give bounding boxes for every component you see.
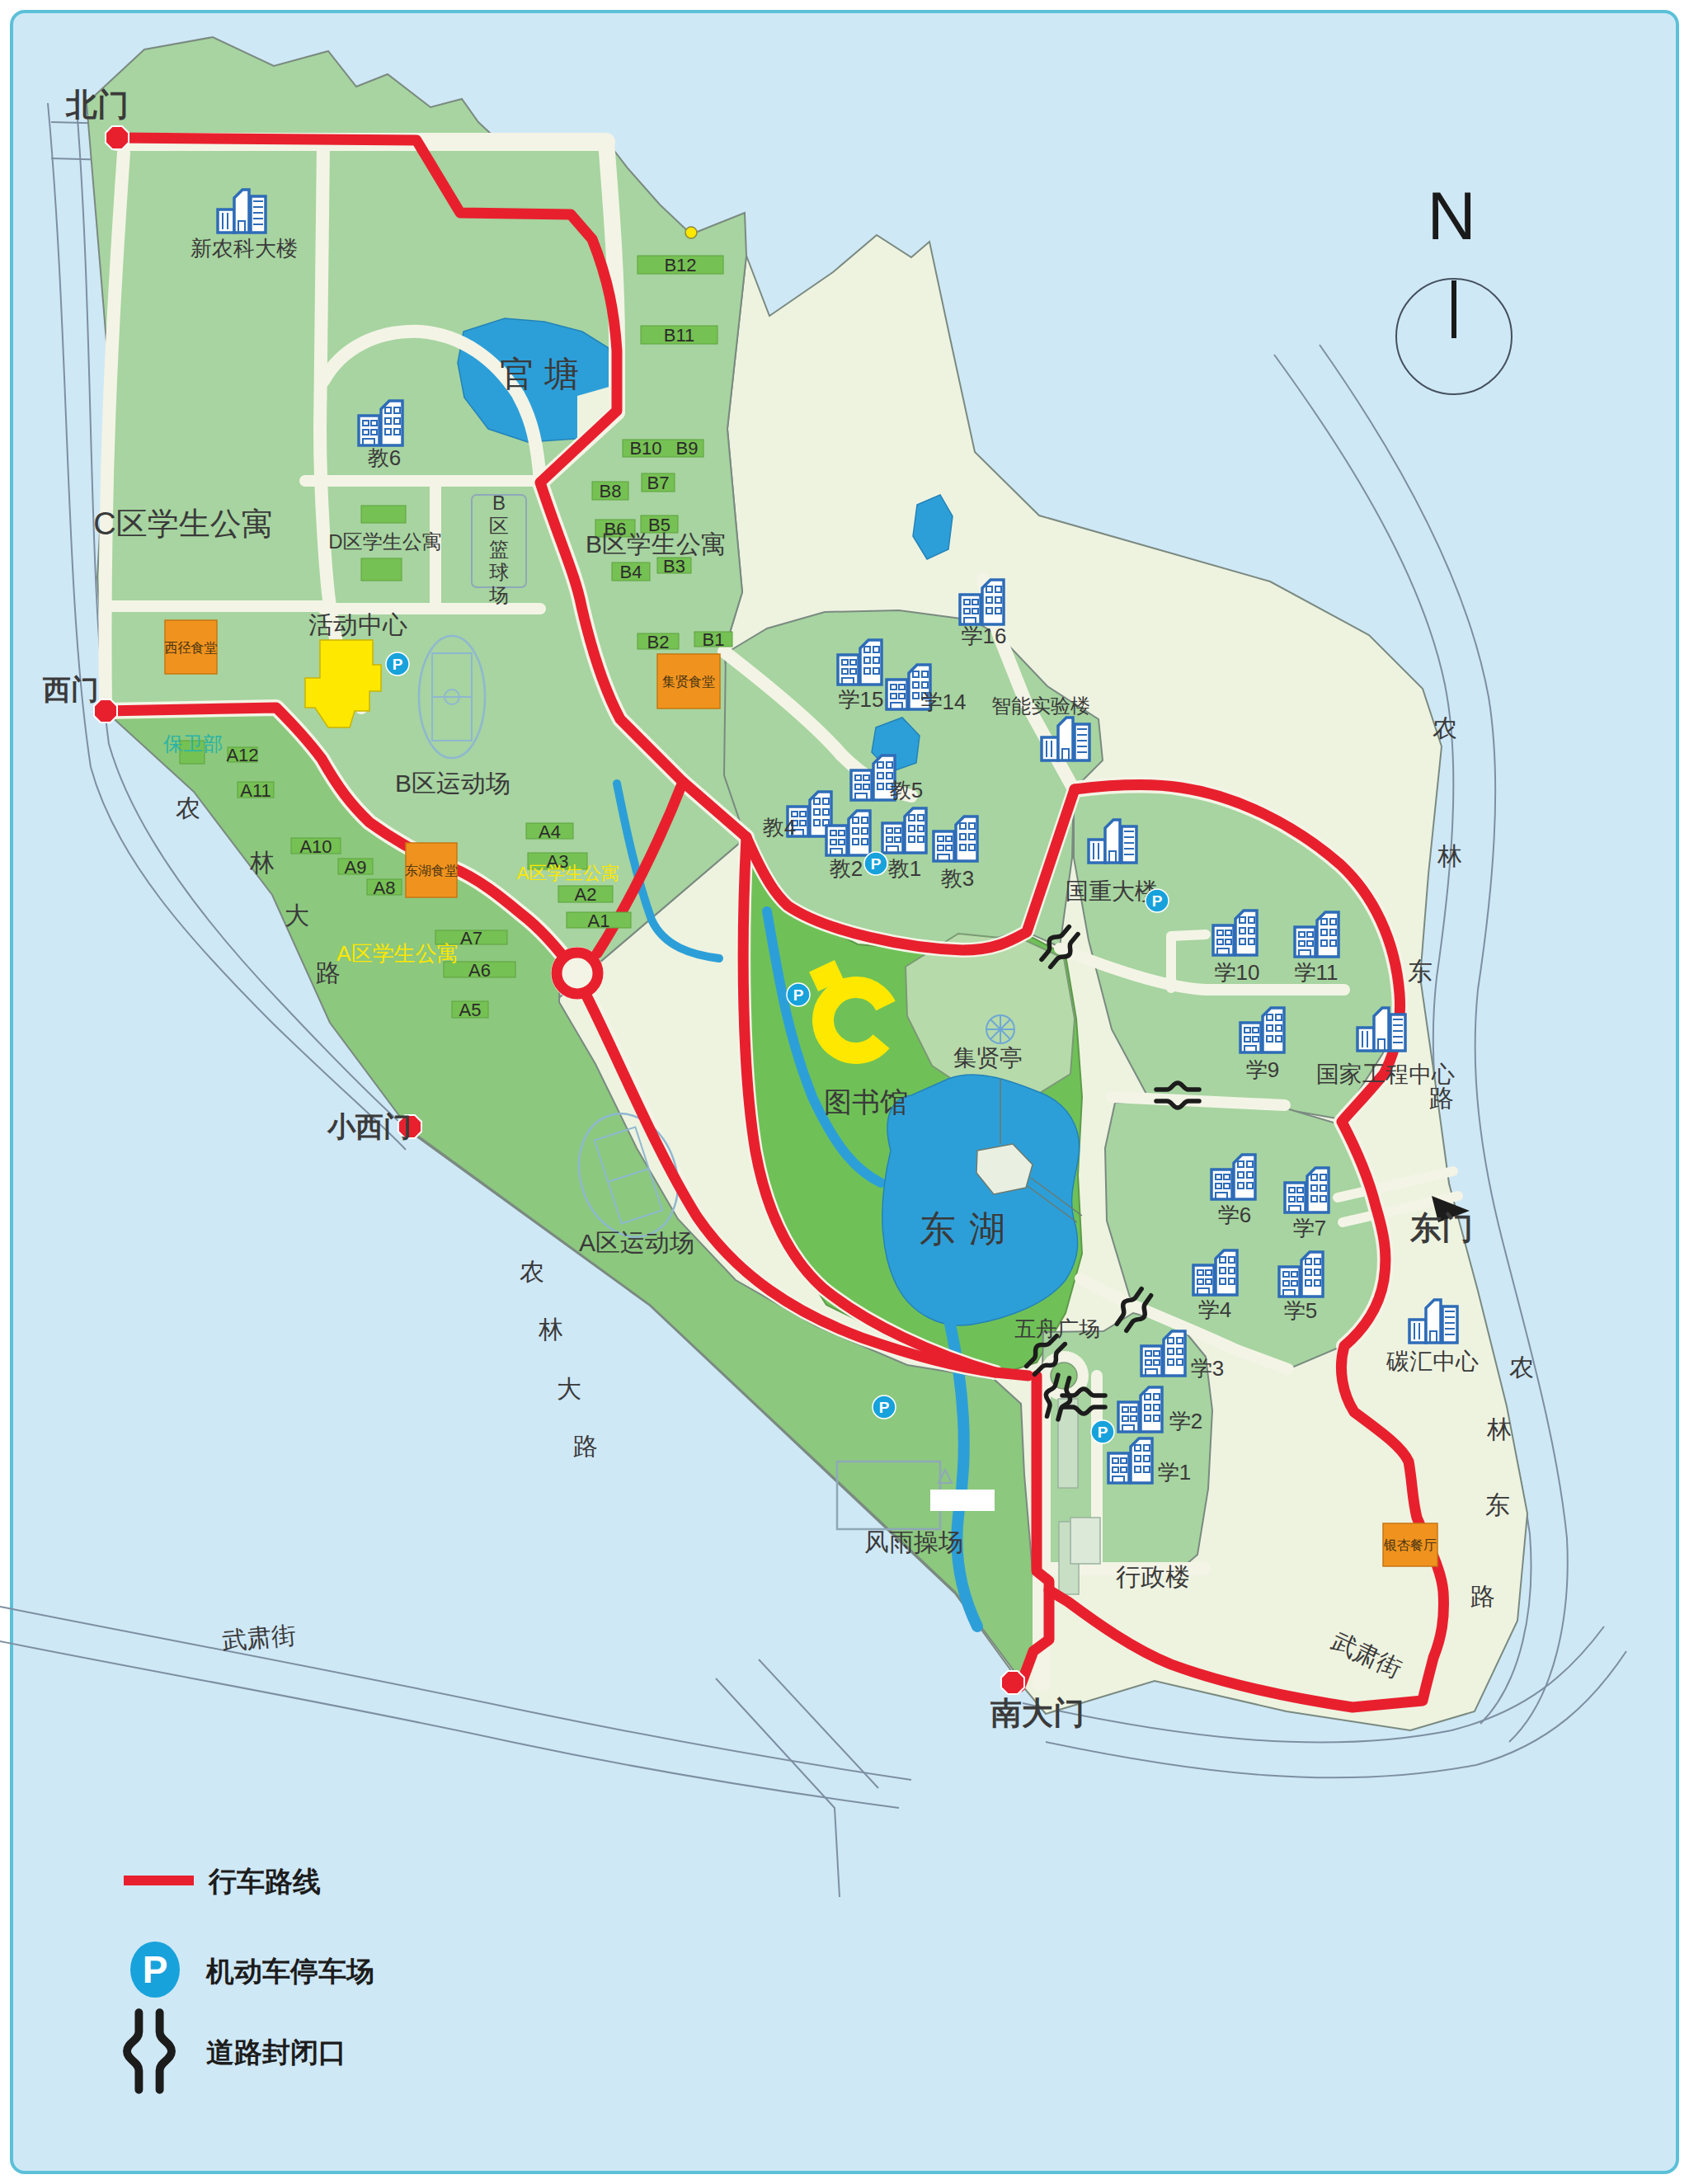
fengyu-label: 风雨操场	[864, 1528, 963, 1556]
xue16-label: 学16	[962, 624, 1007, 648]
building-block-d-dorm-block-2	[361, 558, 402, 581]
building-block-d-dorm-block-1	[361, 506, 406, 523]
parking-jiao-p: P	[871, 855, 882, 873]
b-dorm-label: B区学生公寓	[586, 530, 726, 558]
nonglindonglu-1b: 林	[1437, 842, 1462, 869]
xinnongke-label: 新农科大楼	[191, 236, 298, 261]
xue14-label: 学14	[921, 690, 967, 714]
xue15-label: 学15	[839, 687, 884, 712]
nonglindalu-2d: 路	[573, 1433, 598, 1460]
building-block-label-B8: B8	[600, 481, 622, 501]
security-label: 保卫部	[163, 732, 223, 755]
xue1-label: 学1	[1158, 1460, 1191, 1485]
building-block-label-B2: B2	[647, 632, 670, 652]
legend-parking-p: P	[143, 1948, 168, 1991]
xue5-label: 学5	[1284, 1298, 1317, 1323]
nonglindonglu-2b: 林	[1486, 1415, 1512, 1443]
xue2-label: 学2	[1169, 1409, 1202, 1433]
compass-n-label: N	[1427, 178, 1475, 253]
small-west-gate-label: 小西门	[327, 1111, 412, 1142]
building-block-label-A12: A12	[226, 745, 258, 765]
building-block-label-B11: B11	[664, 325, 695, 346]
nonglindalu-2b: 林	[538, 1316, 563, 1343]
xue6-label: 学6	[1218, 1203, 1251, 1227]
building-block-label-B3: B3	[663, 556, 685, 577]
bridge	[930, 1490, 995, 1511]
jiao3-label: 教3	[941, 866, 974, 891]
nonglindonglu-2a: 农	[1509, 1353, 1534, 1381]
xue10-label: 学10	[1215, 960, 1260, 985]
jixianting-pavilion-icon	[986, 1015, 1014, 1043]
jixianting-label: 集贤亭	[953, 1045, 1023, 1071]
building-block-label-A5: A5	[459, 1000, 482, 1020]
zhineng-label: 智能实验楼	[991, 694, 1090, 717]
guantang-label: 官塘	[500, 355, 589, 393]
nonglindonglu-2d: 路	[1470, 1583, 1495, 1610]
library-label: 图书馆	[824, 1086, 908, 1118]
building-block-label-A8: A8	[374, 878, 396, 898]
building-block-label-A10: A10	[299, 836, 332, 857]
yinxing-canteen-label: 银杏餐厅	[1383, 1538, 1437, 1552]
parking-guozhong-p: P	[1152, 892, 1163, 910]
building-block-label-A2: A2	[575, 884, 597, 905]
jiao2-label: 教2	[830, 856, 863, 881]
c-dorm-label: C区学生公寓	[93, 506, 272, 541]
building-block-label-A9: A9	[345, 857, 367, 878]
nonglindalu-1d: 路	[316, 959, 341, 986]
north-gate-label: 北门	[65, 87, 129, 122]
guojia-gongcheng-label: 国家工程中心	[1316, 1061, 1455, 1087]
building-block-label-A1: A1	[588, 911, 610, 931]
nonglindalu-2c: 大	[557, 1375, 581, 1402]
parking-library-p: P	[793, 986, 804, 1004]
B9-label: B9	[676, 438, 699, 459]
donghu-label: 东湖	[920, 1208, 1019, 1249]
parking-activity-p: P	[393, 656, 403, 673]
admin-label: 行政楼	[1116, 1563, 1190, 1590]
jiao5-label: 教5	[890, 778, 923, 803]
B10-label: B10	[629, 438, 661, 459]
building-block-label-A11: A11	[240, 780, 271, 801]
building-block-label-B7: B7	[647, 473, 670, 493]
donghu-canteen-label: 东湖食堂	[405, 864, 458, 878]
xijing-canteen-label: 西径食堂	[165, 641, 218, 655]
guozhong-label: 国重大楼	[1066, 878, 1158, 904]
yellow-dot	[685, 227, 697, 238]
legend-route-label: 行车路线	[208, 1866, 321, 1897]
legend-parking-label: 机动车停车场	[205, 1956, 374, 1987]
roundabout	[553, 948, 602, 998]
nonglindonglu-1a: 农	[1433, 714, 1457, 741]
east-gate-label: 东门	[1409, 1211, 1473, 1245]
building-block-label-A6: A6	[468, 960, 491, 981]
building-block-label-A7: A7	[460, 928, 482, 948]
nonglindalu-1c: 大	[285, 901, 309, 929]
parking-fengyu-p: P	[879, 1399, 890, 1416]
xue4-label: 学4	[1198, 1297, 1231, 1322]
nonglindalu-1a: 农	[176, 794, 200, 821]
tanhui-label: 碳汇中心	[1386, 1349, 1479, 1374]
building-block-label-B4: B4	[620, 562, 642, 582]
nonglindalu-2a: 农	[520, 1258, 544, 1285]
a-dorm-label-1: A区学生公寓	[336, 941, 458, 966]
south-gate	[1001, 1671, 1024, 1694]
activity-center-label: 活动中心	[308, 611, 407, 638]
nonglindonglu-1c: 东	[1408, 958, 1433, 985]
building-block-label-B12: B12	[664, 255, 696, 275]
north-gate	[106, 126, 129, 149]
west-gate-label: 西门	[42, 674, 99, 705]
building-block-label-B1: B1	[703, 629, 725, 650]
legend-closure-label: 道路封闭口	[206, 2036, 346, 2068]
xue3-label: 学3	[1191, 1356, 1224, 1381]
jiao1-label: 教1	[888, 856, 921, 881]
building-block-label-A4: A4	[539, 821, 561, 842]
xue7-label: 学7	[1293, 1216, 1326, 1240]
jixian-canteen-label: 集贤食堂	[662, 675, 715, 689]
b-field-label: B区运动场	[395, 770, 510, 797]
nonglindonglu-2c: 东	[1485, 1491, 1510, 1518]
parking-xue2-p: P	[1098, 1424, 1108, 1441]
jiao6-label: 教6	[368, 445, 401, 470]
xue9-label: 学9	[1246, 1057, 1279, 1082]
xue11-label: 学11	[1295, 960, 1338, 985]
east-lake	[882, 1075, 1080, 1325]
a-dorm-label-2: A区学生公寓	[517, 863, 620, 883]
jiao4-label: 教4	[763, 815, 796, 840]
d-dorm-label: D区学生公寓	[328, 530, 441, 553]
south-gate-label: 南大门	[990, 1696, 1084, 1730]
nonglindonglu-1d: 路	[1429, 1085, 1454, 1112]
campus-map: B12B11B8B7B6B5B4B3B2B1A12A11A10A9A8A7A6A…	[0, 0, 1689, 2184]
wuzhou-label: 五舟广场	[1014, 1316, 1100, 1341]
nonglindalu-1b: 林	[249, 849, 275, 876]
a-field-label: A区运动场	[579, 1229, 694, 1256]
